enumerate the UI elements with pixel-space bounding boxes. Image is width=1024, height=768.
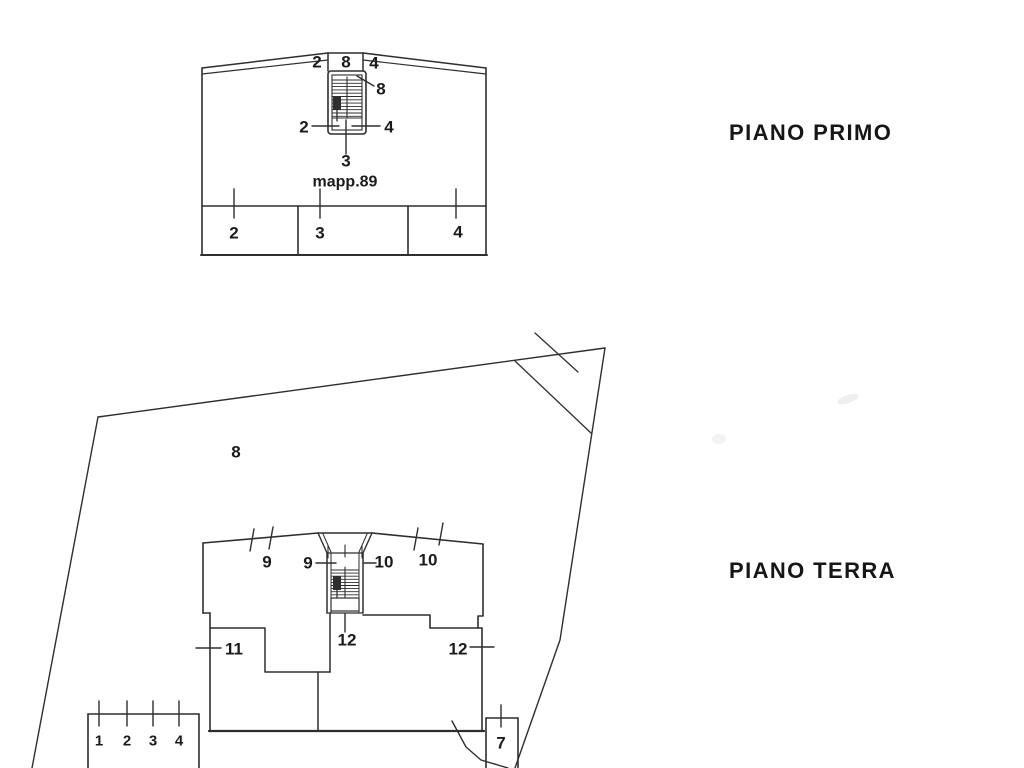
gf-tick-10a (414, 528, 418, 550)
ff-roof-outer-right (363, 53, 486, 68)
plan-label-4: 4 (384, 118, 394, 137)
scan-smudge-0 (836, 392, 859, 406)
plan-label-2: 2 (299, 118, 308, 137)
plan-label-9: 9 (303, 554, 312, 573)
gf-entrance-splay-left (318, 533, 327, 553)
plan-label-4: 4 (175, 733, 184, 750)
gf-stair-landing-box (331, 598, 359, 611)
plan-label-2: 2 (312, 53, 321, 72)
plan-label-12: 12 (338, 631, 357, 650)
plan-label-4: 4 (453, 223, 463, 242)
gf-entrance-splay-left-inner (323, 534, 331, 552)
plan-label-9: 9 (262, 553, 271, 572)
gf-stair-arrow-head (333, 576, 341, 590)
gf-parcel-top (98, 348, 605, 417)
plan-label-11: 11 (225, 640, 243, 659)
gf-parcel-right (515, 348, 605, 768)
plan-label-8: 8 (376, 80, 385, 99)
plan-label-1: 1 (95, 733, 103, 750)
ground-floor-title: PIANO TERRA (729, 558, 896, 584)
ff-roof-outer-left (202, 53, 328, 68)
gf-tick-10b (439, 523, 443, 545)
ff-roof-inner-right (363, 60, 486, 74)
plan-label-2: 2 (123, 733, 131, 750)
plan-label-mapp.89: mapp.89 (313, 174, 378, 191)
plan-label-3: 3 (341, 152, 350, 171)
gf-top-edge-left (203, 533, 318, 543)
scanned-floor-plan-page: 2848243mapp.89234899101011121212347 PIAN… (0, 0, 1024, 768)
plan-label-2: 2 (229, 224, 238, 243)
plan-label-8: 8 (231, 443, 240, 462)
gf-top-edge-right (372, 533, 483, 544)
first-floor-title: PIANO PRIMO (729, 120, 892, 146)
gf-entrance-splay-right (363, 533, 372, 553)
gf-wing-bottom-wall (363, 615, 482, 628)
plan-label-3: 3 (315, 224, 324, 243)
gf-parcel-corner-cut (515, 361, 591, 433)
plan-label-10: 10 (375, 553, 394, 572)
plan-label-10: 10 (419, 551, 438, 570)
floor-plan-canvas: 2848243mapp.89234899101011121212347 (0, 0, 1024, 768)
ff-roof-inner-left (202, 60, 328, 74)
scan-smudge-1 (712, 434, 726, 444)
gf-right-wall-upper (478, 544, 483, 628)
plan-label-7: 7 (496, 734, 505, 753)
gf-entrance-splay-right-inner (359, 534, 367, 552)
plan-label-8: 8 (341, 53, 350, 72)
plan-label-3: 3 (149, 733, 157, 750)
gf-tick-9a (250, 529, 254, 551)
plan-label-12: 12 (449, 640, 468, 659)
plan-label-4: 4 (369, 54, 379, 73)
